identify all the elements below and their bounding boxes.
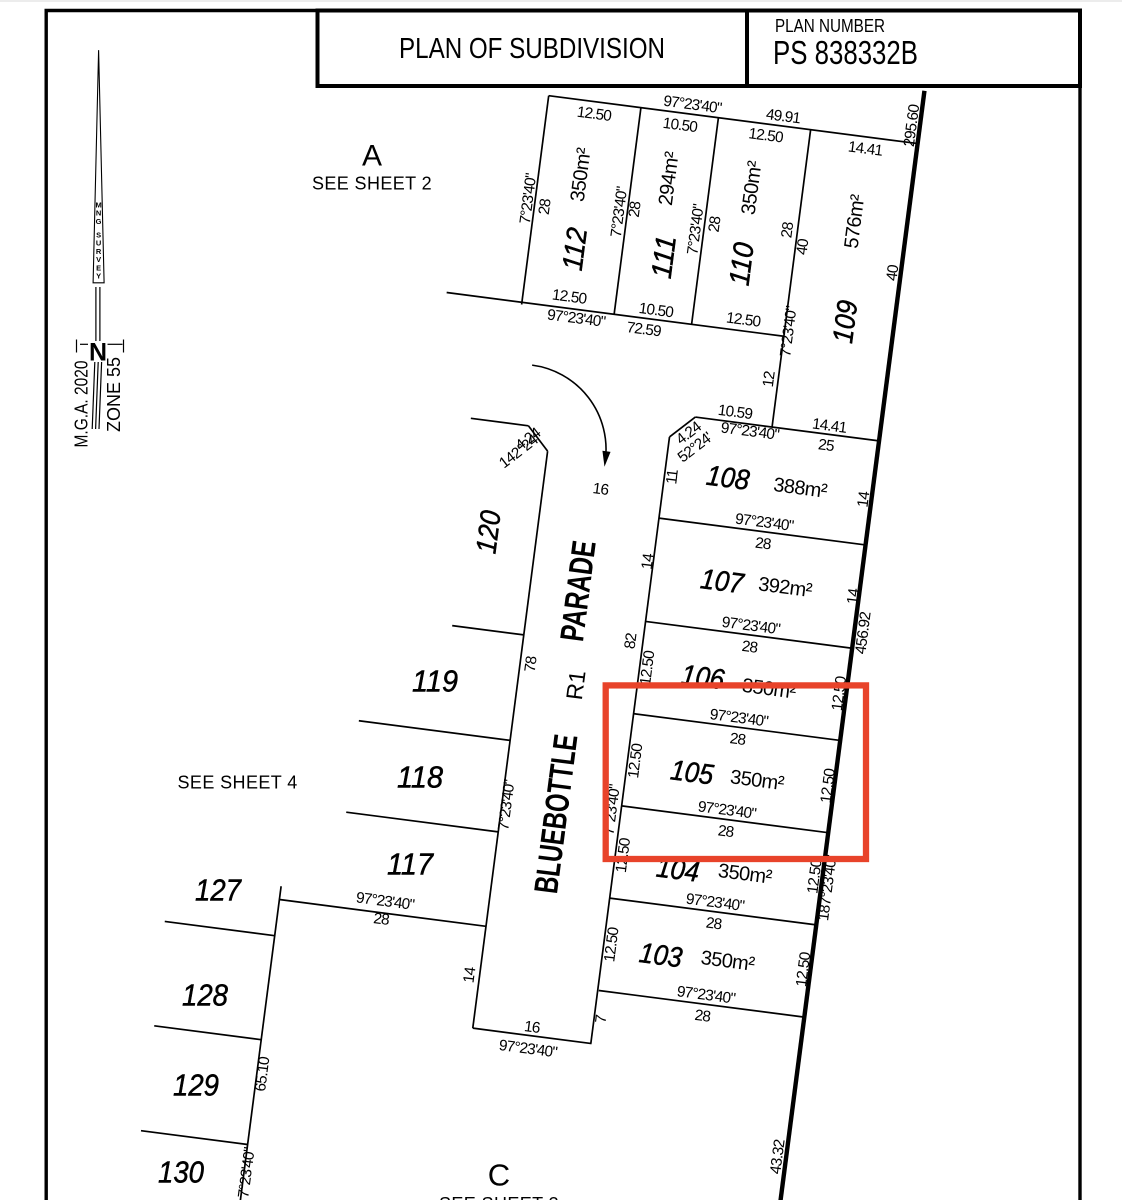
svg-text:111: 111 [646, 234, 683, 281]
svg-text:28: 28 [778, 221, 797, 239]
svg-text:106: 106 [679, 659, 726, 696]
svg-text:12: 12 [760, 370, 779, 388]
svg-text:28: 28 [729, 730, 747, 749]
svg-text:108: 108 [705, 460, 752, 497]
svg-text:28: 28 [626, 201, 645, 219]
svg-text:SEE SHEET 2: SEE SHEET 2 [312, 174, 432, 194]
svg-text:PLAN NUMBER: PLAN NUMBER [775, 16, 885, 36]
svg-text:A: A [362, 140, 382, 173]
svg-text:ZONE 55: ZONE 55 [104, 357, 124, 432]
svg-text:118: 118 [397, 760, 444, 795]
svg-text:28: 28 [706, 216, 725, 234]
svg-text:G: G [96, 217, 102, 226]
svg-text:109: 109 [827, 298, 864, 345]
svg-text:105: 105 [669, 754, 716, 791]
svg-text:25: 25 [817, 436, 835, 455]
svg-text:PLAN OF SUBDIVISION: PLAN OF SUBDIVISION [399, 33, 665, 65]
svg-text:130: 130 [158, 1155, 204, 1190]
svg-text:28: 28 [705, 915, 723, 934]
svg-text:128: 128 [182, 978, 229, 1013]
svg-text:117: 117 [387, 847, 435, 882]
svg-text:16: 16 [592, 480, 610, 499]
svg-text:28: 28 [694, 1007, 712, 1026]
svg-text:28: 28 [536, 198, 555, 216]
svg-text:R1: R1 [561, 669, 591, 702]
svg-text:120: 120 [470, 509, 507, 556]
svg-text:SEE SHEET 4: SEE SHEET 4 [178, 773, 298, 793]
svg-text:82: 82 [622, 632, 641, 650]
svg-text:Y: Y [96, 272, 101, 281]
svg-text:40: 40 [793, 238, 812, 256]
svg-text:127: 127 [195, 873, 243, 908]
svg-text:103: 103 [637, 937, 684, 974]
svg-text:78: 78 [522, 655, 541, 673]
svg-text:C: C [488, 1158, 510, 1193]
svg-text:112: 112 [557, 226, 594, 273]
svg-text:119: 119 [412, 664, 458, 699]
svg-text:28: 28 [717, 822, 735, 841]
svg-text:11: 11 [663, 469, 682, 486]
svg-text:129: 129 [173, 1068, 219, 1103]
svg-text:PS 838332B: PS 838332B [773, 34, 918, 71]
svg-text:107: 107 [699, 563, 747, 600]
svg-text:28: 28 [754, 535, 772, 554]
svg-text:28: 28 [372, 910, 390, 929]
svg-text:M.G.A. 2020: M.G.A. 2020 [71, 361, 91, 448]
svg-text:16: 16 [523, 1018, 541, 1037]
svg-text:110: 110 [724, 241, 761, 288]
svg-text:40: 40 [884, 264, 903, 282]
svg-text:SEE SHEET 3: SEE SHEET 3 [439, 1194, 559, 1200]
svg-text:28: 28 [741, 638, 759, 657]
